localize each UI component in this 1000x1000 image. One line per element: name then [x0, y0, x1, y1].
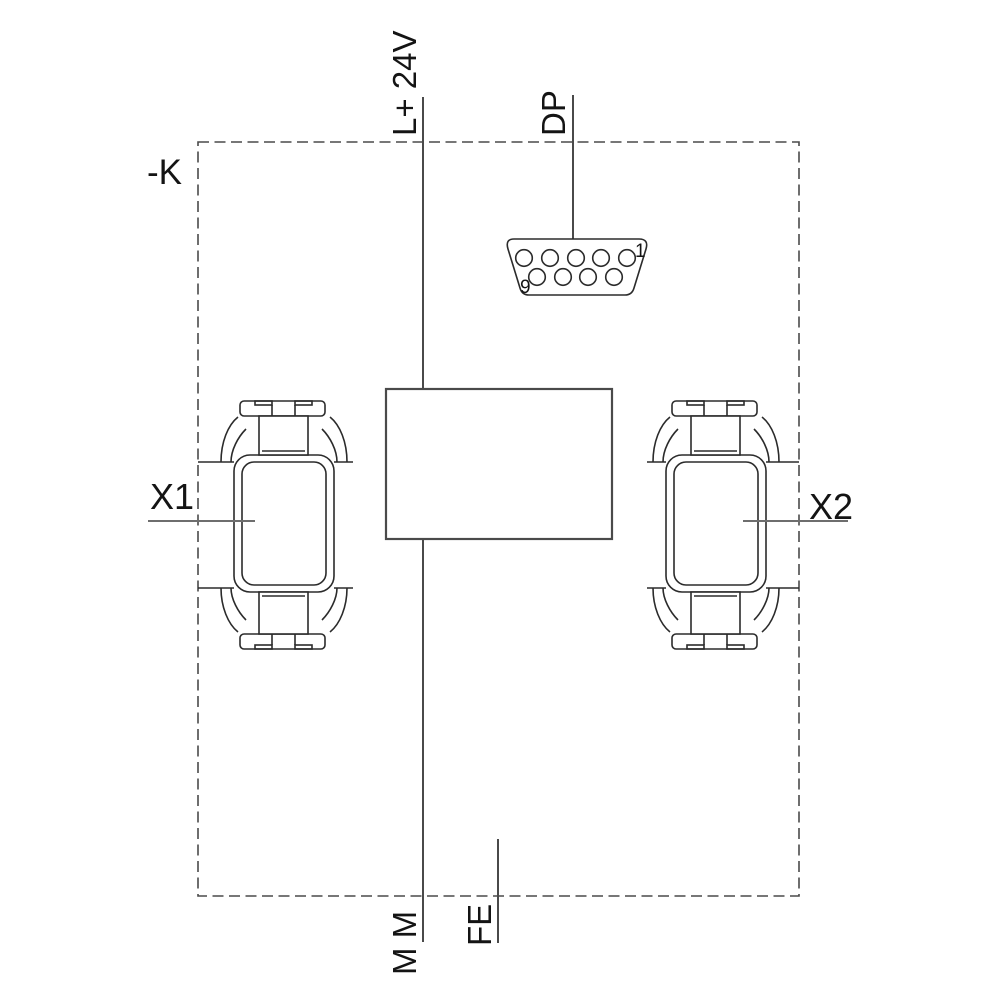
db9-pin9-label: 9: [520, 277, 531, 298]
diagram-canvas: -K L+ 24V DP 1 9 X1 X2: [0, 0, 1000, 1000]
schematic-svg: -K L+ 24V DP 1 9 X1 X2: [0, 0, 1000, 1000]
fe-label: FE: [461, 904, 498, 946]
dp-label: DP: [535, 90, 572, 136]
x2-connector: [647, 401, 799, 649]
ground-m-label: M M: [386, 911, 423, 975]
x1-connector: [198, 401, 353, 649]
device-reference-label: -K: [147, 153, 182, 192]
power-supply-label: L+ 24V: [386, 30, 423, 136]
db9-connector: 1 9: [507, 239, 646, 298]
module-box: [386, 389, 612, 539]
x1-label: X1: [150, 476, 194, 517]
db9-pin1-label: 1: [635, 241, 646, 262]
